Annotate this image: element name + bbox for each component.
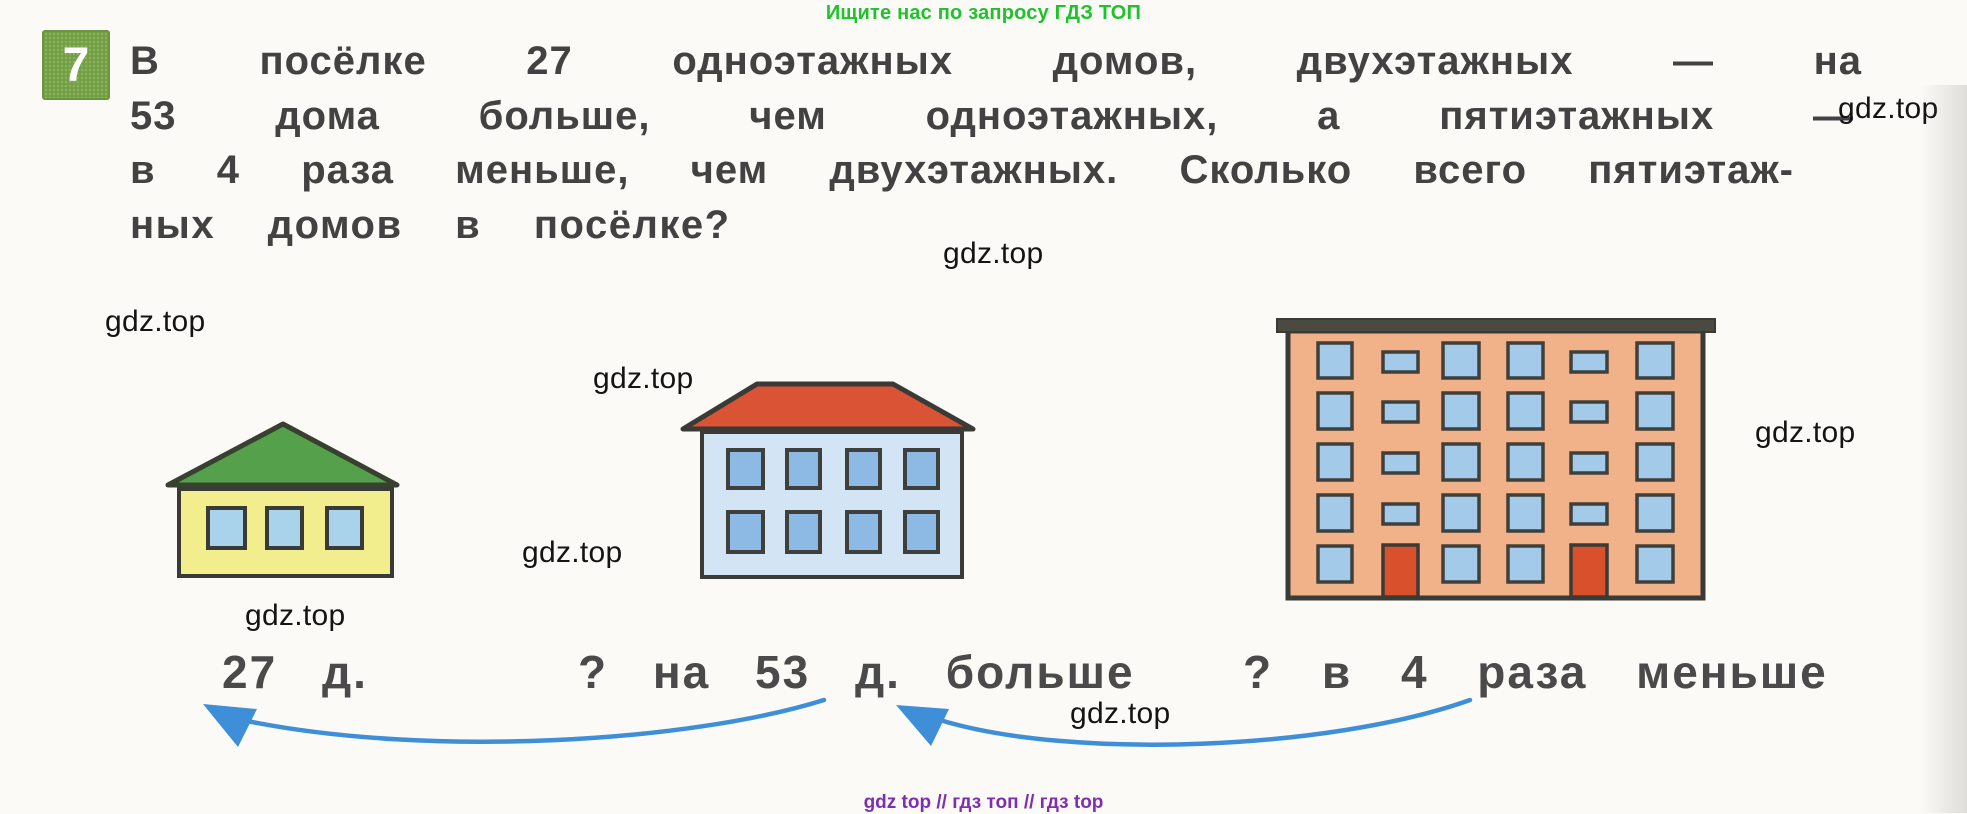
- label-one-story: 27 д.: [222, 645, 368, 699]
- window: [1383, 402, 1418, 422]
- window: [728, 512, 763, 552]
- window: [787, 512, 820, 552]
- arrow-five-to-two: [940, 700, 1470, 745]
- window: [1571, 352, 1607, 372]
- window: [905, 450, 938, 488]
- problem-line-1: В посёлке 27 одноэтажных домов, двухэтаж…: [130, 34, 1862, 89]
- window: [1508, 546, 1543, 582]
- window: [1508, 495, 1543, 531]
- window: [1443, 393, 1479, 429]
- window: [267, 508, 302, 548]
- window: [905, 512, 938, 552]
- building-small-windows: [1383, 352, 1607, 524]
- label-two-story: ? на 53 д. больше: [578, 645, 1135, 699]
- problem-number: 7: [63, 38, 90, 93]
- problem-line-3: в 4 раза меньше, чем двухэтажных. Скольк…: [130, 143, 1794, 198]
- window: [1318, 393, 1352, 429]
- label-five-story: ? в 4 раза меньше: [1243, 645, 1828, 699]
- one-story-wall: [179, 489, 392, 576]
- window: [208, 508, 245, 548]
- door: [1571, 545, 1607, 597]
- watermark-small-house: gdz.top: [245, 599, 346, 633]
- two-story-house: [683, 384, 973, 577]
- problem-statement: В посёлке 27 одноэтажных домов, двухэтаж…: [130, 34, 1862, 252]
- window: [1637, 444, 1673, 480]
- watermark-mid-house-top: gdz.top: [593, 362, 694, 396]
- comparison-arrows: [203, 700, 1470, 747]
- window: [1508, 393, 1543, 429]
- window: [1443, 444, 1479, 480]
- window: [1637, 495, 1673, 531]
- arrowhead-middle: [896, 705, 949, 746]
- window: [728, 450, 763, 488]
- arrowhead-left: [203, 704, 257, 747]
- five-story-wall: [1288, 331, 1703, 598]
- five-story-roof: [1277, 319, 1715, 332]
- window: [1637, 546, 1673, 582]
- window: [1571, 504, 1607, 524]
- window: [1383, 453, 1418, 473]
- five-story-building: [1277, 319, 1715, 598]
- watermark-under-text: gdz.top: [943, 237, 1044, 271]
- window: [847, 512, 880, 552]
- watermark-mid-house-left: gdz.top: [522, 536, 623, 570]
- one-story-roof: [168, 424, 397, 485]
- window: [327, 508, 362, 548]
- window: [1318, 444, 1352, 480]
- window: [1571, 402, 1607, 422]
- window: [1318, 343, 1352, 378]
- one-story-house: [168, 424, 397, 576]
- window: [1571, 453, 1607, 473]
- window: [1443, 495, 1479, 531]
- problem-line-2: 53 дома больше, чем одноэтажных, а пятиэ…: [130, 89, 1854, 144]
- two-story-wall: [702, 432, 962, 577]
- watermark-building-right: gdz.top: [1755, 416, 1856, 450]
- window: [1508, 343, 1543, 378]
- window: [1637, 393, 1673, 429]
- window: [1318, 495, 1352, 531]
- footer-watermark-text: gdz top // гдз топ // гдз top: [864, 792, 1104, 814]
- scanned-textbook-page: { "promo_banner": { "text": "Ищите нас п…: [0, 0, 1967, 813]
- watermark-top-right: gdz.top: [1838, 92, 1939, 126]
- problem-number-badge: 7: [42, 30, 110, 100]
- window: [847, 450, 880, 488]
- door: [1383, 545, 1418, 597]
- two-story-roof: [683, 384, 973, 429]
- promo-banner-text: Ищите нас по запросу ГДЗ ТОП: [826, 2, 1141, 25]
- window: [1383, 504, 1418, 524]
- window: [1443, 343, 1479, 378]
- arrow-two-to-one: [247, 700, 824, 742]
- diagram-labels: 27 д. ? на 53 д. больше ? в 4 раза меньш…: [0, 645, 1967, 705]
- window: [1383, 352, 1418, 372]
- window: [787, 450, 820, 488]
- window: [1318, 546, 1352, 582]
- building-large-windows: [1318, 343, 1673, 582]
- watermark-left: gdz.top: [105, 305, 206, 339]
- window: [1443, 546, 1479, 582]
- window: [1508, 444, 1543, 480]
- window: [1637, 343, 1673, 378]
